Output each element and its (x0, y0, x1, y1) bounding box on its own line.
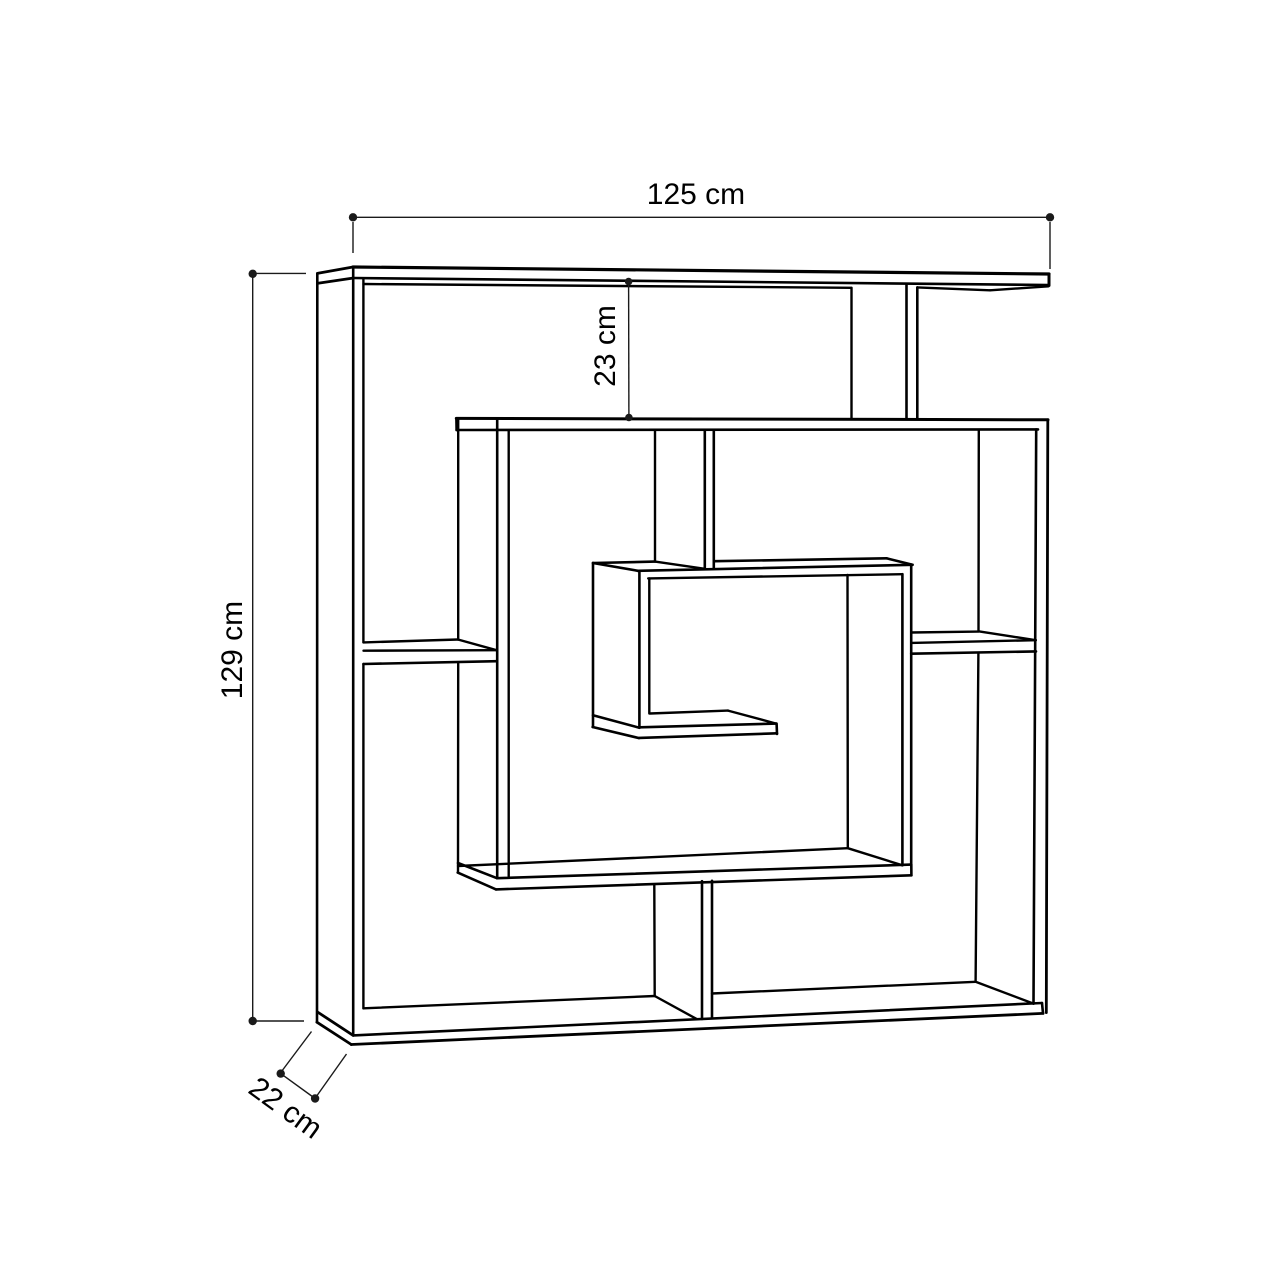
svg-text:129 cm: 129 cm (216, 601, 249, 699)
svg-text:23 cm: 23 cm (589, 305, 622, 387)
svg-text:125 cm: 125 cm (647, 178, 745, 211)
